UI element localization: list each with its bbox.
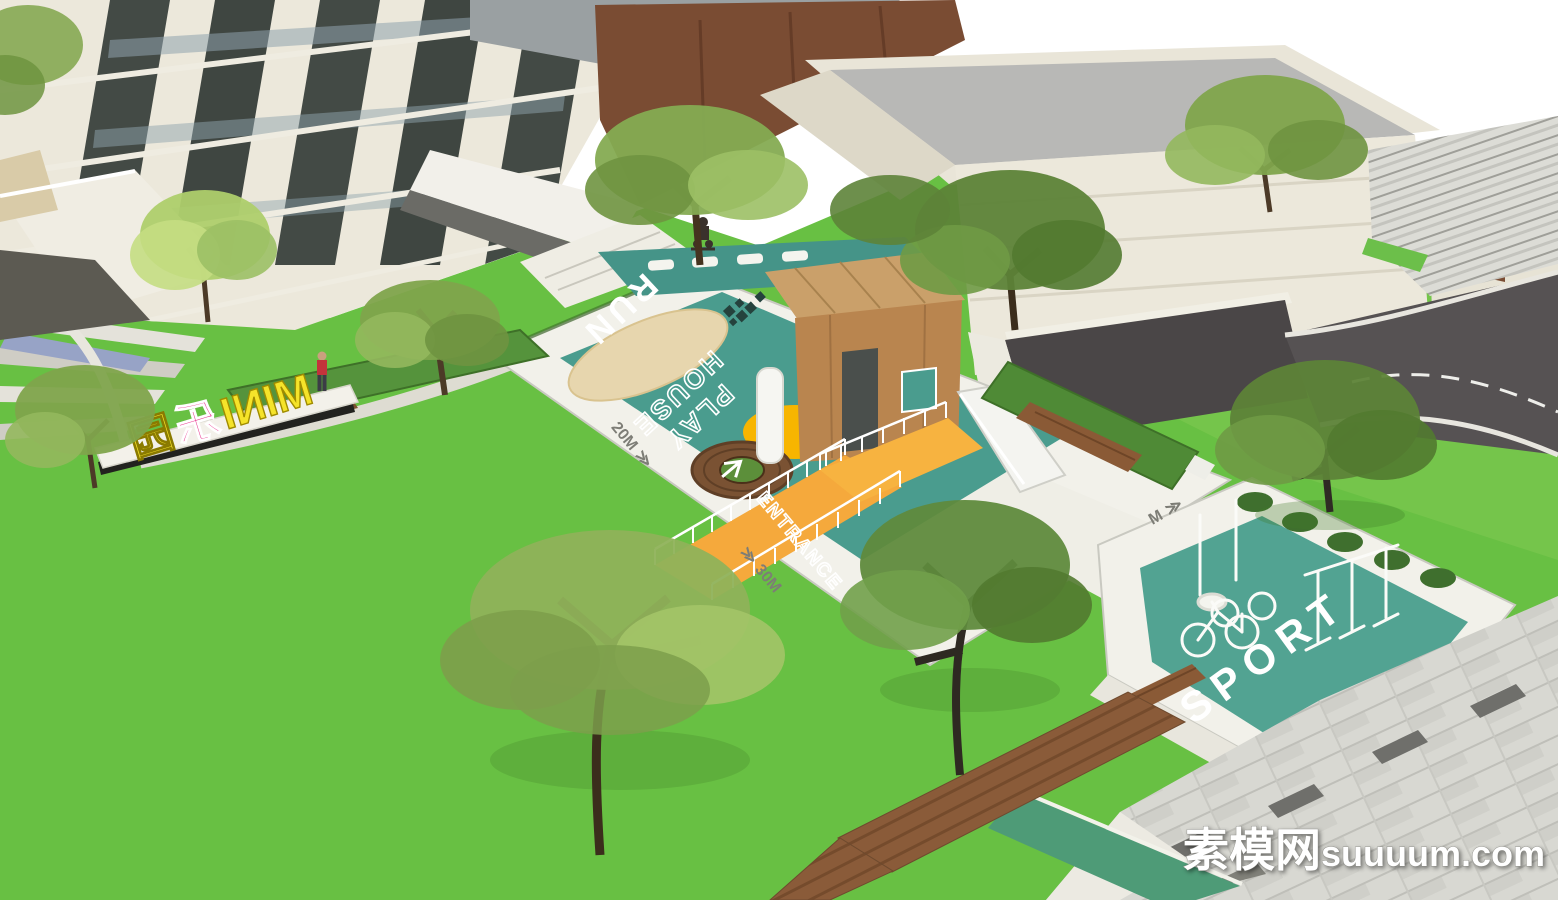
tree-canopy — [5, 412, 85, 468]
tree-canopy — [1165, 125, 1265, 185]
tree-canopy — [688, 150, 808, 220]
tree-canopy — [830, 175, 950, 245]
lounger — [648, 259, 675, 271]
bush — [1374, 550, 1410, 570]
tree-canopy — [1327, 410, 1437, 480]
watermark-site-domain: suuuum.com — [1321, 833, 1545, 874]
tree-shadow — [880, 668, 1060, 712]
sculpture-wheel — [705, 240, 713, 248]
lounger — [782, 250, 809, 262]
tree-canopy — [840, 570, 970, 650]
landscape-render: RUN PLAY HOUSE ENTRANCE 20M≫ ≫30M — [0, 0, 1558, 900]
tree-canopy — [355, 312, 435, 368]
bush — [1327, 532, 1363, 552]
tree-canopy — [972, 567, 1092, 643]
slide-tower — [757, 368, 783, 463]
tree-shadow — [490, 730, 750, 790]
tree-canopy — [510, 645, 710, 735]
tree-canopy — [425, 314, 509, 366]
person-leg — [323, 375, 327, 391]
tree-canopy — [1268, 120, 1368, 180]
person-head — [318, 352, 327, 361]
tree — [830, 175, 950, 245]
tree-canopy — [585, 155, 695, 225]
bush — [1420, 568, 1456, 588]
person-leg — [318, 375, 322, 391]
person-torso — [317, 360, 327, 375]
watermark-site-cn: 素模网 — [1183, 824, 1321, 876]
tree-canopy — [1215, 415, 1325, 485]
tree-canopy — [1012, 220, 1122, 290]
tree-canopy — [197, 220, 277, 280]
lounger — [692, 256, 719, 268]
house-window — [902, 368, 936, 412]
lounger — [737, 253, 764, 265]
